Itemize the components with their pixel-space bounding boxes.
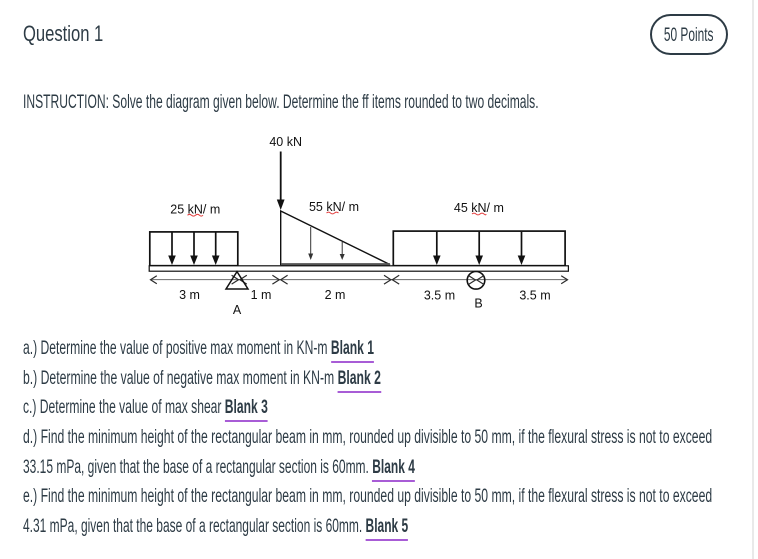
svg-text:45 kN/ m: 45 kN/ m — [454, 201, 504, 215]
svg-text:2 m: 2 m — [325, 288, 346, 302]
svg-text:3.5 m: 3.5 m — [424, 289, 455, 303]
svg-text:3.5 m: 3.5 m — [519, 289, 550, 303]
svg-text:40 kN: 40 kN — [269, 135, 302, 149]
svg-text:55 kN/ m: 55 kN/ m — [309, 200, 359, 214]
svg-text:1 m: 1 m — [251, 288, 272, 302]
svg-text:B: B — [474, 297, 482, 311]
svg-text:25 kN/ m: 25 kN/ m — [170, 202, 220, 216]
svg-text:3 m: 3 m — [179, 288, 200, 302]
svg-text:A: A — [233, 303, 242, 317]
